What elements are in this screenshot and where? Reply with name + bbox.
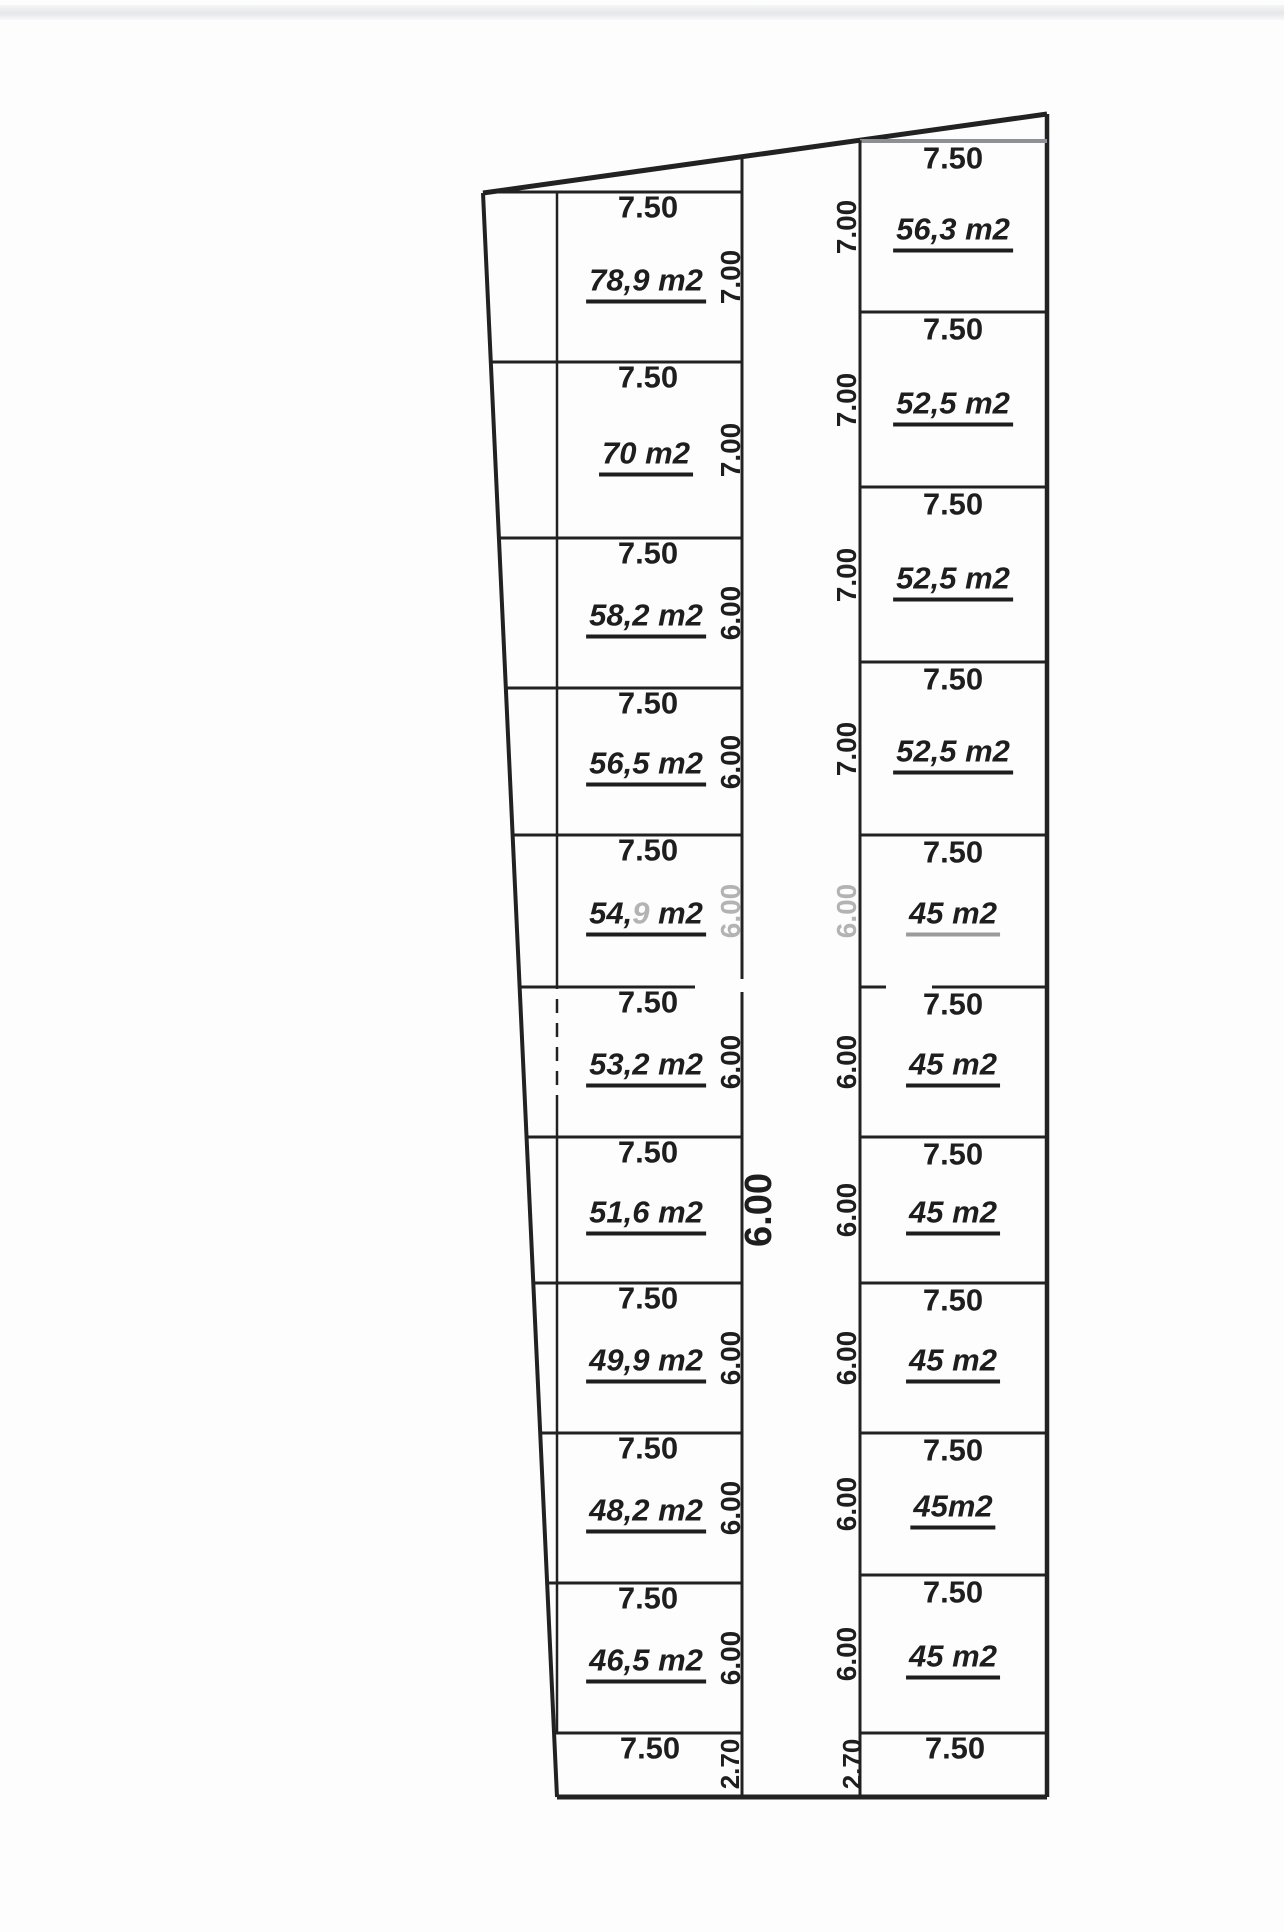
plot-width-label: 7.50 xyxy=(618,1433,678,1464)
plot-area-label-part: m2 xyxy=(649,896,702,931)
plot-width-label: 7.50 xyxy=(923,1577,983,1608)
plot-depth-label: 6.00 xyxy=(833,1035,861,1090)
plot-area-label: 51,6 m2 xyxy=(586,1196,706,1235)
plot-depth-label: 6.00 xyxy=(717,884,745,939)
plot-depth-label: 7.00 xyxy=(833,372,861,427)
plot-area-label-part: 9 xyxy=(632,896,649,931)
plot-width-label: 7.50 xyxy=(923,664,983,695)
plot-depth-label: 7.00 xyxy=(717,250,745,305)
plot-area-label-part: 54, xyxy=(589,896,632,931)
plot-depth-label: 6.00 xyxy=(717,1631,745,1686)
plot-area-label: 45 m2 xyxy=(906,1345,1000,1384)
plot-depth-label: 6.00 xyxy=(717,1481,745,1536)
plot-area-label: 45 m2 xyxy=(906,1049,1000,1088)
plot-depth-label: 6.00 xyxy=(833,1331,861,1386)
plot-area-label: 53,2 m2 xyxy=(586,1049,706,1088)
plot-width-label: 7.50 xyxy=(923,1139,983,1170)
plot-depth-label: 7.00 xyxy=(717,423,745,478)
plot-depth-label: 6.00 xyxy=(833,1183,861,1238)
plot-depth-label: 6.00 xyxy=(717,1331,745,1386)
plot-area-label: 56,5 m2 xyxy=(586,748,706,787)
plot-area-label: 54,9 m2 xyxy=(586,898,706,937)
plot-area-label: 45 m2 xyxy=(906,1196,1000,1235)
plot-width-label: 7.50 xyxy=(923,143,983,174)
plot-depth-label: 7.00 xyxy=(833,547,861,602)
plot-depth-label: 7.00 xyxy=(833,721,861,776)
road-width-label: 6.00 xyxy=(740,1173,778,1247)
plot-width-label: 7.50 xyxy=(618,1283,678,1314)
plot-width-label: 7.50 xyxy=(923,489,983,520)
plot-depth-label: 6.00 xyxy=(717,734,745,789)
plan-labels: 7.5078,9 m27.007.5070 m27.007.5058,2 m26… xyxy=(0,0,1284,1932)
plot-area-label: 78,9 m2 xyxy=(586,264,706,303)
plot-width-label: 7.50 xyxy=(923,314,983,345)
strip-depth-label: 2.70 xyxy=(717,1739,743,1790)
plot-width-label: 7.50 xyxy=(618,538,678,569)
plot-area-label: 58,2 m2 xyxy=(586,600,706,639)
plot-width-label: 7.50 xyxy=(618,192,678,223)
plot-depth-label: 7.00 xyxy=(833,199,861,254)
plot-area-label: 45 m2 xyxy=(906,898,1000,937)
plot-area-label: 48,2 m2 xyxy=(586,1495,706,1534)
plot-area-label: 46,5 m2 xyxy=(586,1645,706,1684)
strip-depth-label: 2.70 xyxy=(839,1739,865,1790)
plot-depth-label: 6.00 xyxy=(833,1477,861,1532)
plan-page: 7.5078,9 m27.007.5070 m27.007.5058,2 m26… xyxy=(0,0,1284,1932)
plot-area-label: 45 m2 xyxy=(906,1641,1000,1680)
plot-width-label: 7.50 xyxy=(923,1435,983,1466)
plot-area-label: 52,5 m2 xyxy=(893,387,1013,426)
plot-area-label: 70 m2 xyxy=(599,438,693,477)
plot-width-label: 7.50 xyxy=(618,1583,678,1614)
plot-width-label: 7.50 xyxy=(618,987,678,1018)
plot-width-label: 7.50 xyxy=(923,989,983,1020)
plot-depth-label: 6.00 xyxy=(717,586,745,641)
strip-width-label: 7.50 xyxy=(620,1733,680,1764)
plot-area-label: 56,3 m2 xyxy=(893,214,1013,253)
plot-width-label: 7.50 xyxy=(618,1137,678,1168)
plot-width-label: 7.50 xyxy=(618,362,678,393)
plot-depth-label: 6.00 xyxy=(717,1035,745,1090)
plot-area-label: 49,9 m2 xyxy=(586,1345,706,1384)
plot-area-label: 45m2 xyxy=(910,1490,995,1529)
strip-width-label: 7.50 xyxy=(925,1733,985,1764)
plot-width-label: 7.50 xyxy=(923,837,983,868)
plot-width-label: 7.50 xyxy=(618,835,678,866)
plot-width-label: 7.50 xyxy=(923,1285,983,1316)
plot-depth-label: 6.00 xyxy=(833,1627,861,1682)
plot-depth-label: 6.00 xyxy=(833,884,861,939)
plot-width-label: 7.50 xyxy=(618,688,678,719)
plot-area-label: 52,5 m2 xyxy=(893,562,1013,601)
plot-area-label: 52,5 m2 xyxy=(893,736,1013,775)
